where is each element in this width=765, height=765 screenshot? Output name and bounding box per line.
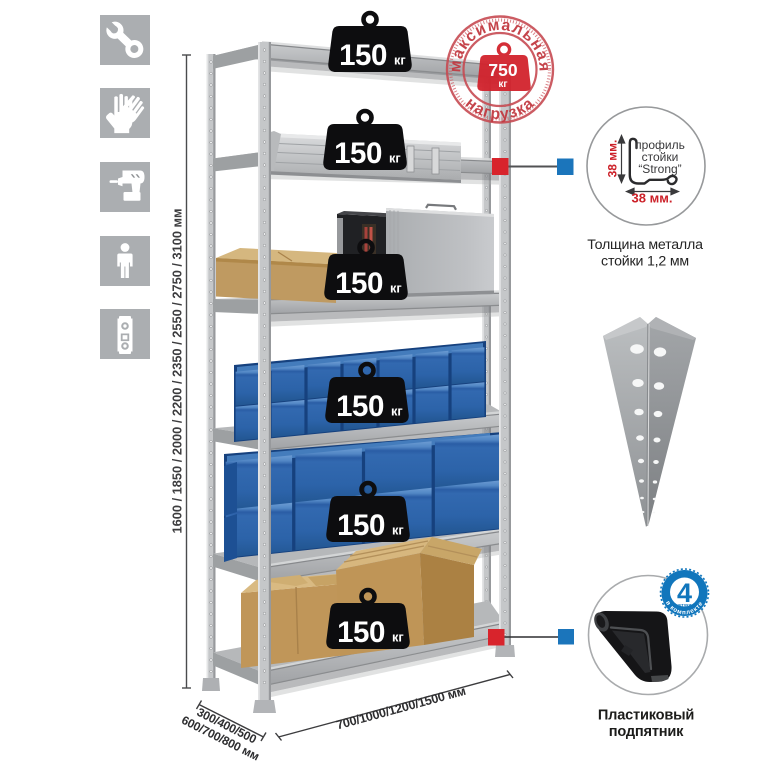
svg-text:Пластиковый: Пластиковый (598, 708, 694, 724)
svg-text:“Strong”: “Strong” (638, 162, 681, 176)
svg-text:подпятник: подпятник (609, 724, 684, 740)
svg-text:кг: кг (498, 79, 507, 90)
svg-text:38 мм.: 38 мм. (632, 191, 673, 206)
svg-text:1600 / 1850 / 2000 / 2200 / 23: 1600 / 1850 / 2000 / 2200 / 2350 / 2550 … (169, 209, 184, 534)
svg-text:штуки: штуки (678, 603, 692, 608)
svg-text:700/1000/1200/1500 мм: 700/1000/1200/1500 мм (335, 684, 468, 733)
svg-text:750: 750 (488, 60, 517, 80)
svg-text:Толщина металла: Толщина металла (587, 237, 703, 253)
svg-text:38 мм.: 38 мм. (606, 140, 620, 178)
svg-text:стойки 1,2 мм: стойки 1,2 мм (601, 254, 689, 270)
